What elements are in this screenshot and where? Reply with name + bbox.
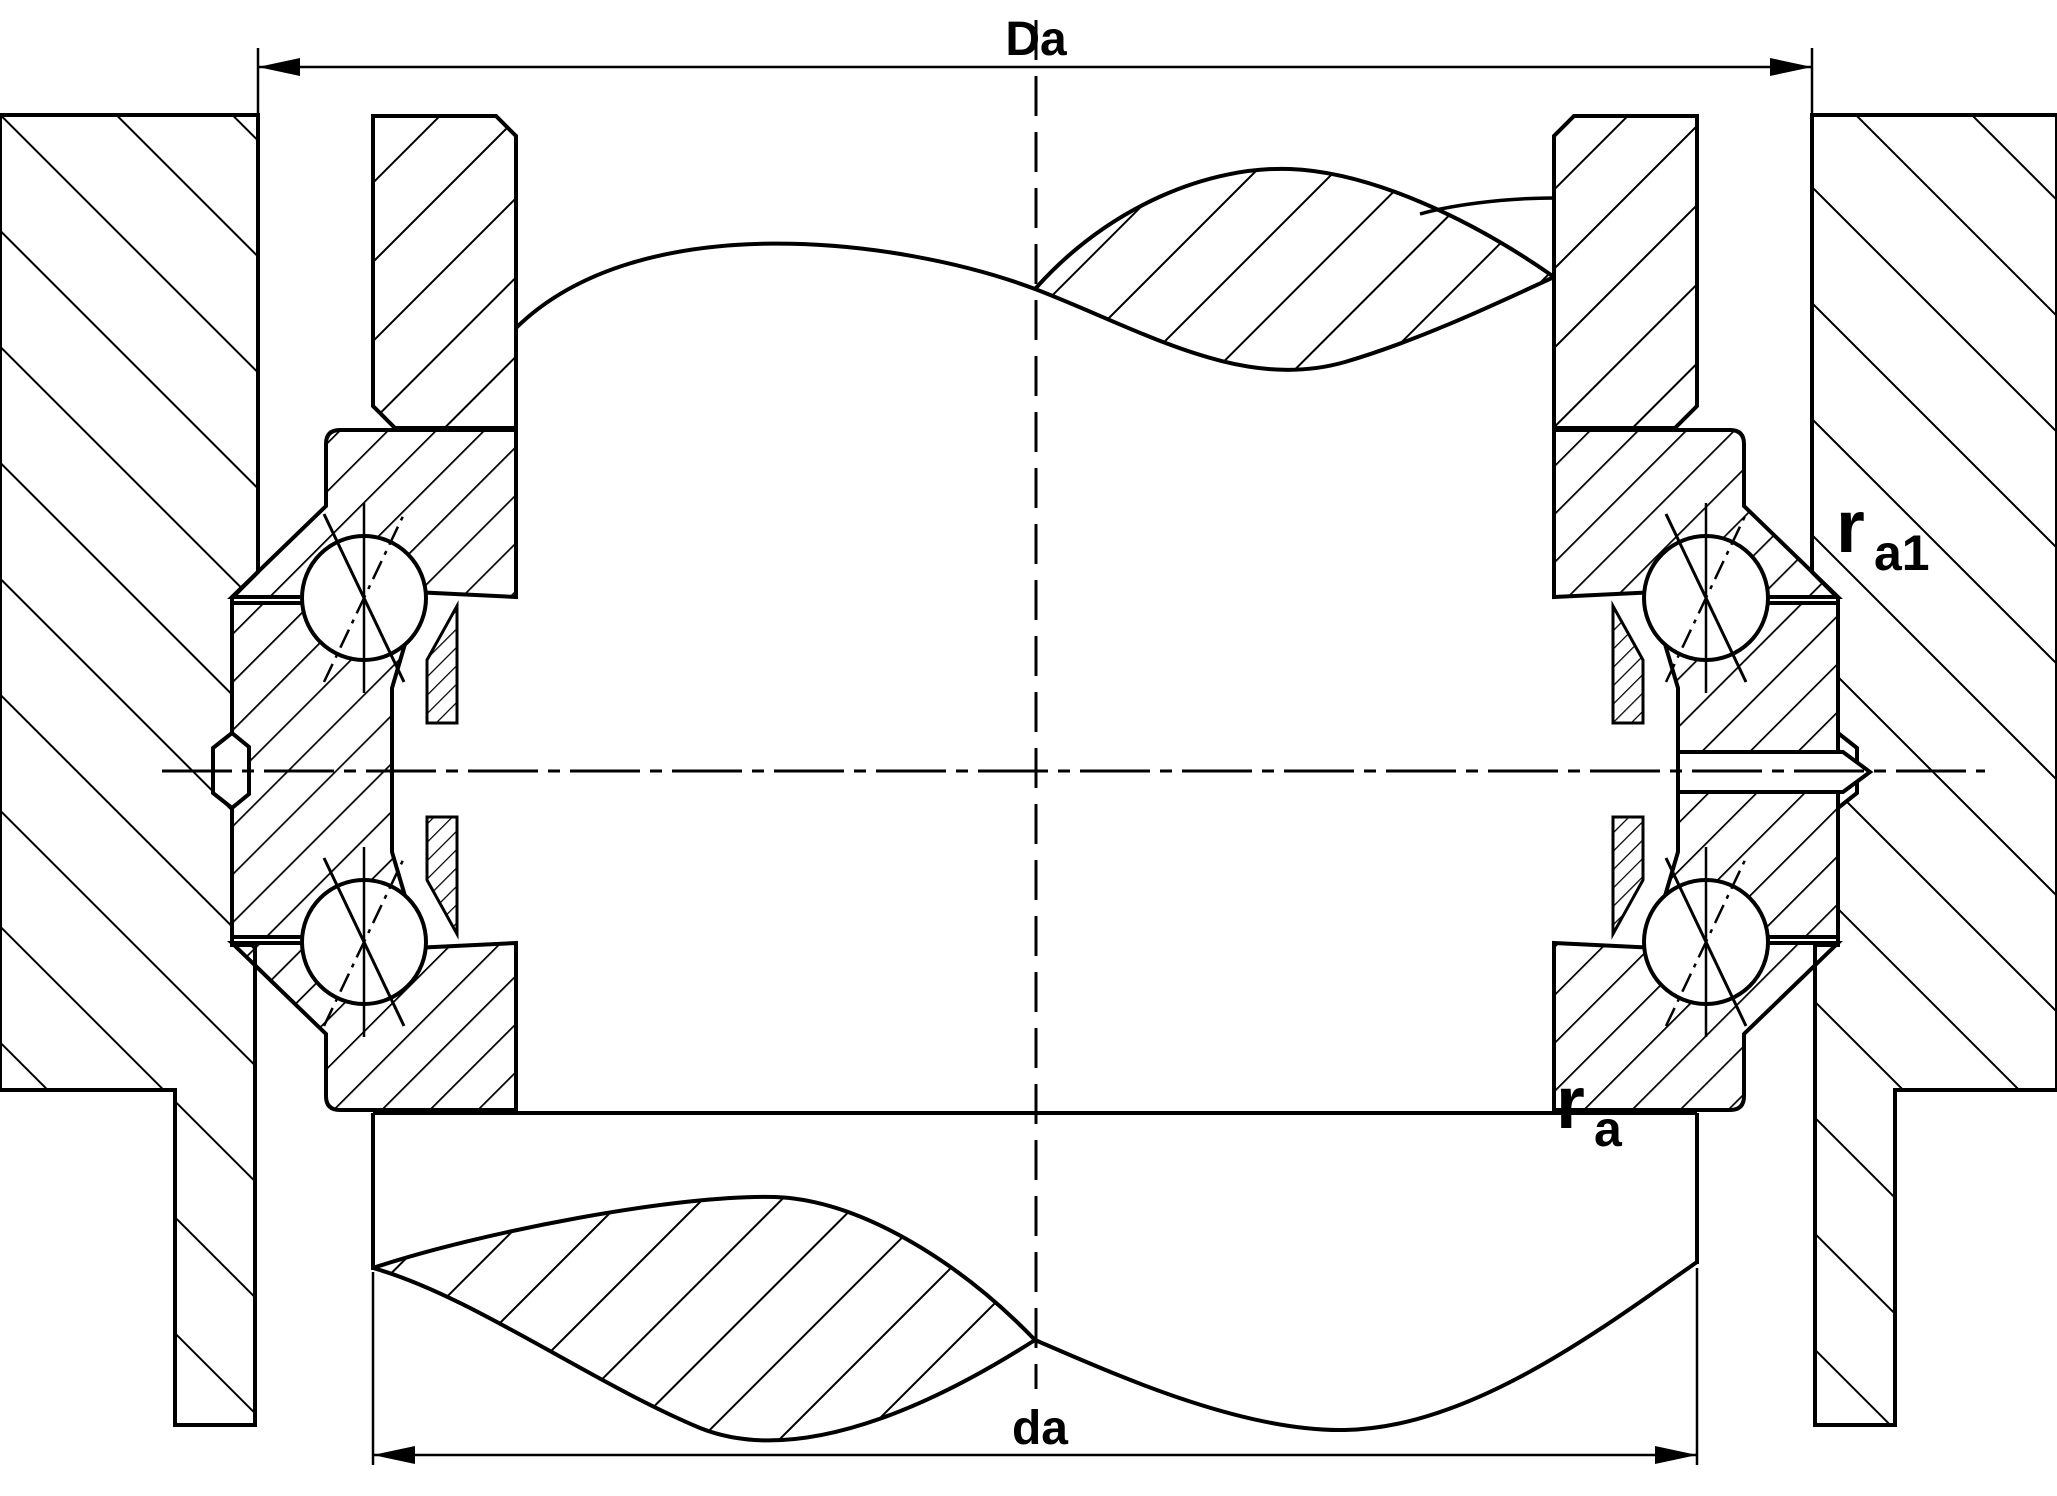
bearing-section-canvas: Da da r a1 r a — [0, 0, 2057, 1496]
shaft-sleeve-top-right — [1554, 116, 1697, 428]
technical-drawing: Da da r a1 r a — [0, 0, 2057, 1496]
shaft-sleeve-top-left — [373, 116, 516, 428]
dimension-label-da: da — [1012, 1402, 1068, 1455]
dimension-label-Da: Da — [1005, 13, 1067, 66]
